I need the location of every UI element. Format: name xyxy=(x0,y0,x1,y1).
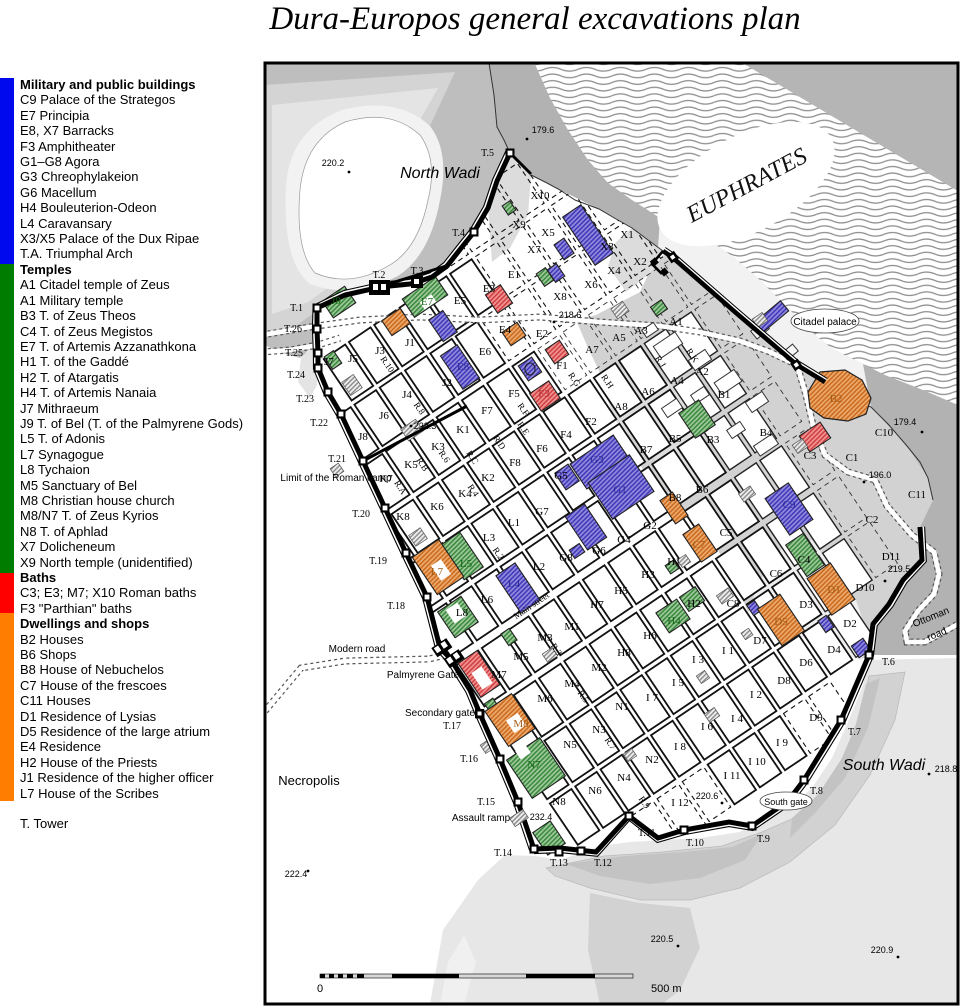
svg-text:A6: A6 xyxy=(641,386,655,398)
svg-text:N7: N7 xyxy=(527,759,541,771)
svg-text:B7: B7 xyxy=(640,444,653,456)
svg-text:B2: B2 xyxy=(830,393,843,405)
svg-text:J7: J7 xyxy=(324,356,334,368)
svg-text:T.7: T.7 xyxy=(848,727,861,738)
svg-text:E7: E7 xyxy=(421,296,434,308)
svg-text:F3: F3 xyxy=(538,388,550,400)
svg-text:I 5: I 5 xyxy=(672,677,684,689)
svg-text:C11: C11 xyxy=(908,489,926,501)
svg-text:I 1: I 1 xyxy=(722,645,734,657)
svg-text:N4: N4 xyxy=(617,772,631,784)
svg-text:F6: F6 xyxy=(536,443,548,455)
svg-text:C10: C10 xyxy=(875,427,894,439)
svg-text:J2: J2 xyxy=(442,377,452,389)
svg-text:N3: N3 xyxy=(592,724,606,736)
svg-text:I 4: I 4 xyxy=(731,713,743,725)
svg-text:Assault ramp: Assault ramp xyxy=(452,813,511,824)
svg-text:T.20: T.20 xyxy=(352,509,370,520)
svg-text:220.5: 220.5 xyxy=(651,934,674,944)
svg-text:T.18: T.18 xyxy=(387,601,405,612)
svg-text:J6: J6 xyxy=(379,410,389,422)
svg-text:220.6: 220.6 xyxy=(696,791,719,801)
svg-text:A2: A2 xyxy=(695,366,708,378)
svg-text:I 10: I 10 xyxy=(748,756,766,768)
svg-text:E3: E3 xyxy=(483,283,496,295)
svg-text:D3: D3 xyxy=(799,599,813,611)
svg-text:G2: G2 xyxy=(643,520,656,532)
svg-text:B8: B8 xyxy=(669,492,682,504)
svg-text:B4: B4 xyxy=(760,427,773,439)
svg-text:M4: M4 xyxy=(564,678,580,690)
svg-text:F1: F1 xyxy=(556,360,568,372)
svg-text:H7: H7 xyxy=(590,599,604,611)
svg-text:X3: X3 xyxy=(600,241,614,253)
svg-text:X9: X9 xyxy=(512,219,526,231)
svg-text:I 8: I 8 xyxy=(674,741,686,753)
svg-text:G5: G5 xyxy=(554,470,568,482)
svg-text:I 2: I 2 xyxy=(750,689,762,701)
svg-text:T.26: T.26 xyxy=(284,324,302,335)
svg-text:J5: J5 xyxy=(348,353,358,365)
svg-text:L7: L7 xyxy=(431,566,444,578)
svg-text:H6: H6 xyxy=(643,630,657,642)
svg-text:K1: K1 xyxy=(456,424,469,436)
svg-text:X7: X7 xyxy=(527,244,541,256)
svg-text:L6: L6 xyxy=(481,594,494,606)
svg-text:219.5: 219.5 xyxy=(888,564,911,574)
svg-text:218.6: 218.6 xyxy=(559,310,582,320)
svg-text:A8: A8 xyxy=(614,401,628,413)
svg-text:H5: H5 xyxy=(614,585,628,597)
svg-text:T.2: T.2 xyxy=(373,270,386,281)
svg-text:T.6: T.6 xyxy=(882,657,895,668)
svg-text:M5: M5 xyxy=(513,651,529,663)
svg-text:I 3: I 3 xyxy=(692,654,704,666)
svg-text:F8: F8 xyxy=(509,457,521,469)
svg-text:D2: D2 xyxy=(843,618,856,630)
svg-text:T.13: T.13 xyxy=(550,858,568,869)
svg-text:L1: L1 xyxy=(508,517,520,529)
svg-text:M2: M2 xyxy=(591,662,606,674)
svg-text:Citadel palace: Citadel palace xyxy=(793,317,857,328)
svg-text:X6: X6 xyxy=(584,279,598,291)
svg-text:D6: D6 xyxy=(799,657,813,669)
svg-text:D9: D9 xyxy=(809,712,823,724)
svg-text:Limit of the Roman camp: Limit of the Roman camp xyxy=(280,473,392,484)
svg-text:X10: X10 xyxy=(531,190,550,202)
svg-text:D10: D10 xyxy=(856,582,875,594)
svg-text:C5: C5 xyxy=(720,527,733,539)
svg-text:H3: H3 xyxy=(641,569,655,581)
svg-text:E5: E5 xyxy=(454,295,467,307)
svg-text:T.10: T.10 xyxy=(686,838,704,849)
svg-text:L8: L8 xyxy=(456,607,469,619)
svg-text:L4: L4 xyxy=(508,578,521,590)
svg-text:G8: G8 xyxy=(559,552,573,564)
svg-text:A3: A3 xyxy=(634,325,648,337)
svg-text:G3: G3 xyxy=(590,454,604,466)
svg-text:G1: G1 xyxy=(613,484,626,496)
svg-text:L5: L5 xyxy=(460,558,473,570)
svg-text:G7: G7 xyxy=(535,506,549,518)
svg-text:A4: A4 xyxy=(670,375,684,387)
svg-text:K2: K2 xyxy=(481,472,494,484)
svg-text:F4: F4 xyxy=(560,429,572,441)
svg-text:196.0: 196.0 xyxy=(869,470,892,480)
svg-text:Modern road: Modern road xyxy=(329,644,386,655)
svg-text:220.9: 220.9 xyxy=(871,945,894,955)
svg-text:D1: D1 xyxy=(827,584,840,596)
svg-text:X4: X4 xyxy=(607,265,621,277)
svg-text:T.3: T.3 xyxy=(411,266,424,277)
svg-text:North Wadi: North Wadi xyxy=(400,165,480,182)
svg-text:222.3: 222.3 xyxy=(414,421,437,431)
svg-text:A1: A1 xyxy=(669,316,682,328)
svg-text:South gate: South gate xyxy=(764,797,808,807)
svg-text:C2: C2 xyxy=(866,514,879,526)
svg-text:G4: G4 xyxy=(617,534,631,546)
svg-text:Palmyrene Gate: Palmyrene Gate xyxy=(387,670,460,681)
svg-text:D4: D4 xyxy=(827,644,841,656)
svg-text:J8: J8 xyxy=(358,431,368,443)
svg-text:179.4: 179.4 xyxy=(894,417,917,427)
svg-text:T.25: T.25 xyxy=(285,348,303,359)
svg-text:J4: J4 xyxy=(402,389,412,401)
svg-text:M6: M6 xyxy=(537,693,553,705)
svg-text:C8: C8 xyxy=(727,598,740,610)
svg-text:N6: N6 xyxy=(588,785,602,797)
svg-text:F2: F2 xyxy=(585,416,597,428)
svg-text:I 12: I 12 xyxy=(671,797,688,809)
svg-text:T.14: T.14 xyxy=(494,848,512,859)
svg-text:H4: H4 xyxy=(667,615,681,627)
svg-text:C3: C3 xyxy=(804,450,817,462)
svg-text:232.4: 232.4 xyxy=(530,812,553,822)
svg-text:G6: G6 xyxy=(592,545,606,557)
svg-text:K8: K8 xyxy=(396,511,410,523)
svg-text:M1: M1 xyxy=(564,621,579,633)
svg-text:T.21: T.21 xyxy=(328,454,346,465)
svg-text:T.17: T.17 xyxy=(443,721,461,732)
svg-text:N2: N2 xyxy=(645,754,658,766)
svg-text:220.2: 220.2 xyxy=(322,158,345,168)
svg-text:A7: A7 xyxy=(585,344,599,356)
svg-text:I 11: I 11 xyxy=(723,770,740,782)
svg-text:M8: M8 xyxy=(513,718,529,730)
svg-text:C1: C1 xyxy=(846,452,859,464)
svg-text:222.4: 222.4 xyxy=(285,869,308,879)
svg-text:F7: F7 xyxy=(481,405,493,417)
svg-text:T.5: T.5 xyxy=(481,148,494,159)
svg-text:K6: K6 xyxy=(430,501,444,513)
svg-text:H8: H8 xyxy=(617,647,631,659)
svg-text:H1: H1 xyxy=(667,556,680,568)
svg-text:J1: J1 xyxy=(405,337,415,349)
svg-text:South Wadi: South Wadi xyxy=(843,757,926,774)
svg-text:D7: D7 xyxy=(753,635,767,647)
svg-text:F5: F5 xyxy=(508,388,520,400)
svg-text:D8: D8 xyxy=(777,675,791,687)
svg-text:T.22: T.22 xyxy=(310,418,328,429)
svg-text:J9: J9 xyxy=(331,295,341,307)
svg-text:L2: L2 xyxy=(533,561,545,573)
svg-text:T.23: T.23 xyxy=(296,394,314,405)
svg-text:X5: X5 xyxy=(541,227,555,239)
svg-text:T.15: T.15 xyxy=(477,797,495,808)
svg-text:M3: M3 xyxy=(537,632,553,644)
svg-text:D11: D11 xyxy=(882,551,901,563)
svg-text:E6: E6 xyxy=(479,346,492,358)
svg-text:0: 0 xyxy=(317,983,323,995)
svg-text:E4: E4 xyxy=(499,324,512,336)
svg-text:N5: N5 xyxy=(563,739,577,751)
svg-text:C9: C9 xyxy=(783,499,796,511)
svg-text:Necropolis: Necropolis xyxy=(278,773,340,788)
svg-text:500 m: 500 m xyxy=(651,983,682,995)
svg-text:B1: B1 xyxy=(718,389,731,401)
svg-text:218.8: 218.8 xyxy=(935,764,958,774)
svg-text:X8: X8 xyxy=(553,291,567,303)
svg-text:M7: M7 xyxy=(491,669,507,681)
svg-text:Secondary gate: Secondary gate xyxy=(405,708,475,719)
svg-text:X2: X2 xyxy=(633,256,646,268)
svg-text:T.16: T.16 xyxy=(460,754,478,765)
svg-text:I 9: I 9 xyxy=(776,737,788,749)
svg-text:E2: E2 xyxy=(536,328,548,340)
svg-text:C6: C6 xyxy=(770,568,783,580)
svg-text:D5: D5 xyxy=(774,616,788,628)
svg-text:I 7: I 7 xyxy=(646,692,658,704)
svg-text:T.12: T.12 xyxy=(594,858,612,869)
svg-text:B3: B3 xyxy=(707,434,720,446)
svg-text:L3: L3 xyxy=(483,532,496,544)
svg-text:E1: E1 xyxy=(508,269,520,281)
svg-text:T.8: T.8 xyxy=(810,786,823,797)
svg-text:H2: H2 xyxy=(687,598,700,610)
svg-text:I 6: I 6 xyxy=(701,721,713,733)
svg-text:N1: N1 xyxy=(615,701,628,713)
svg-text:C4: C4 xyxy=(798,554,811,566)
svg-text:T.11: T.11 xyxy=(638,828,656,839)
svg-text:T.4: T.4 xyxy=(452,228,465,239)
svg-text:T.19: T.19 xyxy=(369,556,387,567)
svg-text:T.9: T.9 xyxy=(757,834,770,845)
svg-text:C7: C7 xyxy=(693,539,706,551)
svg-text:T.1: T.1 xyxy=(290,303,303,314)
svg-text:A5: A5 xyxy=(612,332,626,344)
svg-text:B5: B5 xyxy=(669,433,682,445)
svg-text:179.6: 179.6 xyxy=(532,125,555,135)
svg-text:B6: B6 xyxy=(696,484,709,496)
svg-text:T.24: T.24 xyxy=(287,370,305,381)
svg-text:X1: X1 xyxy=(620,229,633,241)
svg-text:N8: N8 xyxy=(552,796,566,808)
svg-text:E8: E8 xyxy=(457,361,470,373)
